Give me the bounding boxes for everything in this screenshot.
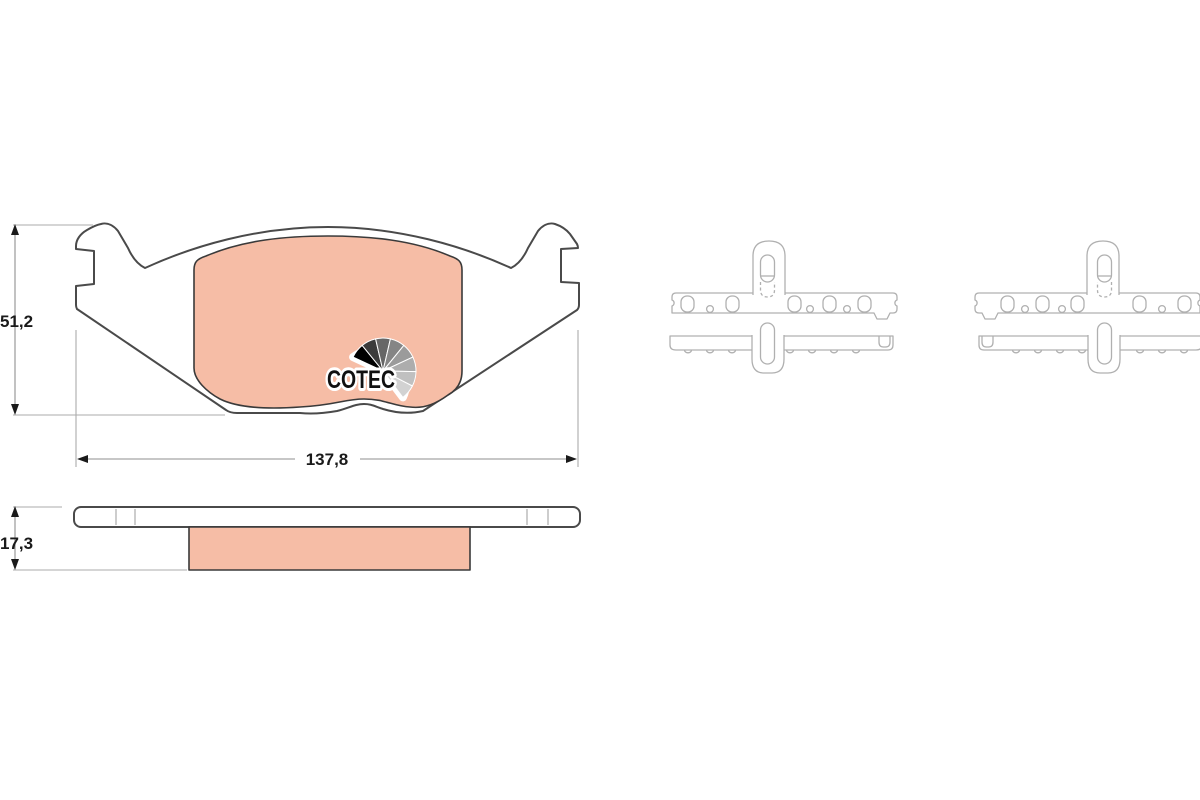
backing-plate-side [74,507,580,527]
front-view: COTEC [76,223,579,413]
clip-upper-bar [672,293,897,319]
technical-drawing-page: COTEC 51,2 137,8 17,3 [0,0,1200,800]
clip-stem-fill [753,241,785,295]
arrow-up-icon [11,506,19,517]
width-value: 137,8 [306,450,349,469]
side-view [74,507,580,570]
friction-material-side [189,527,470,570]
logo-wordmark: COTEC [327,366,395,394]
clip-leg-slot [761,323,775,364]
clip-top-view-mirrored [975,241,1200,373]
arrow-right-icon [566,455,577,463]
arrow-left-icon [77,455,88,463]
arrow-up-icon [11,224,19,235]
arrow-down-icon [11,404,19,415]
arrow-down-icon [11,559,19,570]
brake-pad-drawing-canvas: COTEC 51,2 137,8 17,3 [0,0,1200,800]
height-value: 51,2 [0,312,33,331]
thickness-value: 17,3 [0,534,33,553]
clip-top-view [670,241,897,373]
